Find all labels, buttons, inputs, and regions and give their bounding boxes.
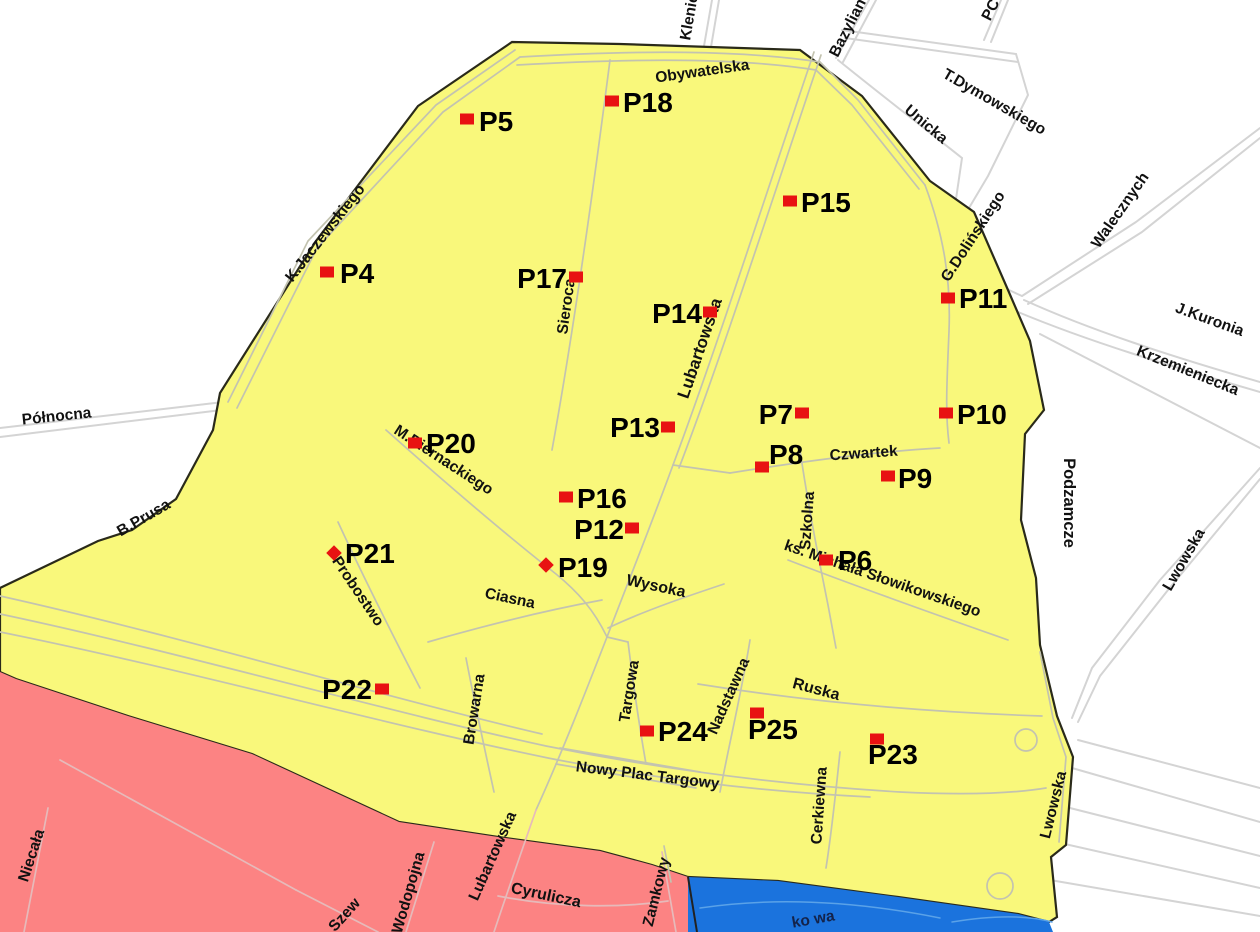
map-canvas: ObywatelskaKlenieBazylianPCT.Dymowskiego… bbox=[0, 0, 1260, 932]
marker-P7-label: P7 bbox=[759, 399, 793, 430]
street-label-podzamcze: Podzamcze bbox=[1060, 458, 1078, 548]
marker-P16-label: P16 bbox=[577, 483, 627, 514]
marker-P10-label: P10 bbox=[957, 399, 1007, 430]
marker-P15-label: P15 bbox=[801, 187, 851, 218]
marker-P23-label: P23 bbox=[868, 739, 918, 770]
marker-P24-square-icon[interactable] bbox=[640, 726, 654, 737]
marker-P25-label: P25 bbox=[748, 714, 798, 745]
marker-group-P23[interactable]: P23 bbox=[868, 734, 918, 771]
marker-P15-square-icon[interactable] bbox=[783, 196, 797, 207]
marker-P22-label: P22 bbox=[322, 674, 372, 705]
marker-P12-label: P12 bbox=[574, 514, 624, 545]
marker-P18-label: P18 bbox=[623, 87, 673, 118]
marker-P12-square-icon[interactable] bbox=[625, 523, 639, 534]
marker-P24-label: P24 bbox=[658, 716, 708, 747]
marker-P19-label: P19 bbox=[558, 552, 608, 583]
marker-P17-label: P17 bbox=[517, 263, 567, 294]
marker-P14-square-icon[interactable] bbox=[703, 307, 717, 318]
marker-P7-square-icon[interactable] bbox=[795, 408, 809, 419]
marker-P13-square-icon[interactable] bbox=[661, 422, 675, 433]
marker-P9-square-icon[interactable] bbox=[881, 471, 895, 482]
marker-P9-label: P9 bbox=[898, 463, 932, 494]
marker-group-P25[interactable]: P25 bbox=[748, 708, 798, 746]
marker-P18-square-icon[interactable] bbox=[605, 96, 619, 107]
marker-P10-square-icon[interactable] bbox=[939, 408, 953, 419]
marker-P13-label: P13 bbox=[610, 412, 660, 443]
marker-P22-square-icon[interactable] bbox=[375, 684, 389, 695]
marker-P21-label: P21 bbox=[345, 538, 395, 569]
marker-P16-square-icon[interactable] bbox=[559, 492, 573, 503]
marker-P20-label: P20 bbox=[426, 428, 476, 459]
marker-P20-square-icon[interactable] bbox=[408, 438, 422, 449]
marker-P6-square-icon[interactable] bbox=[819, 555, 833, 566]
city-zoning-map: ObywatelskaKlenieBazylianPCT.Dymowskiego… bbox=[0, 0, 1260, 932]
marker-P14-label: P14 bbox=[652, 298, 702, 329]
marker-P6-label: P6 bbox=[838, 545, 872, 576]
marker-P5-label: P5 bbox=[479, 106, 513, 137]
marker-P11-label: P11 bbox=[959, 283, 1007, 314]
marker-P4-square-icon[interactable] bbox=[320, 267, 334, 278]
marker-P8-square-icon[interactable] bbox=[755, 462, 769, 473]
marker-P8-label: P8 bbox=[769, 439, 803, 470]
marker-P17-square-icon[interactable] bbox=[569, 272, 583, 283]
marker-P4-label: P4 bbox=[340, 258, 375, 289]
marker-P5-square-icon[interactable] bbox=[460, 114, 474, 125]
marker-P11-square-icon[interactable] bbox=[941, 293, 955, 304]
